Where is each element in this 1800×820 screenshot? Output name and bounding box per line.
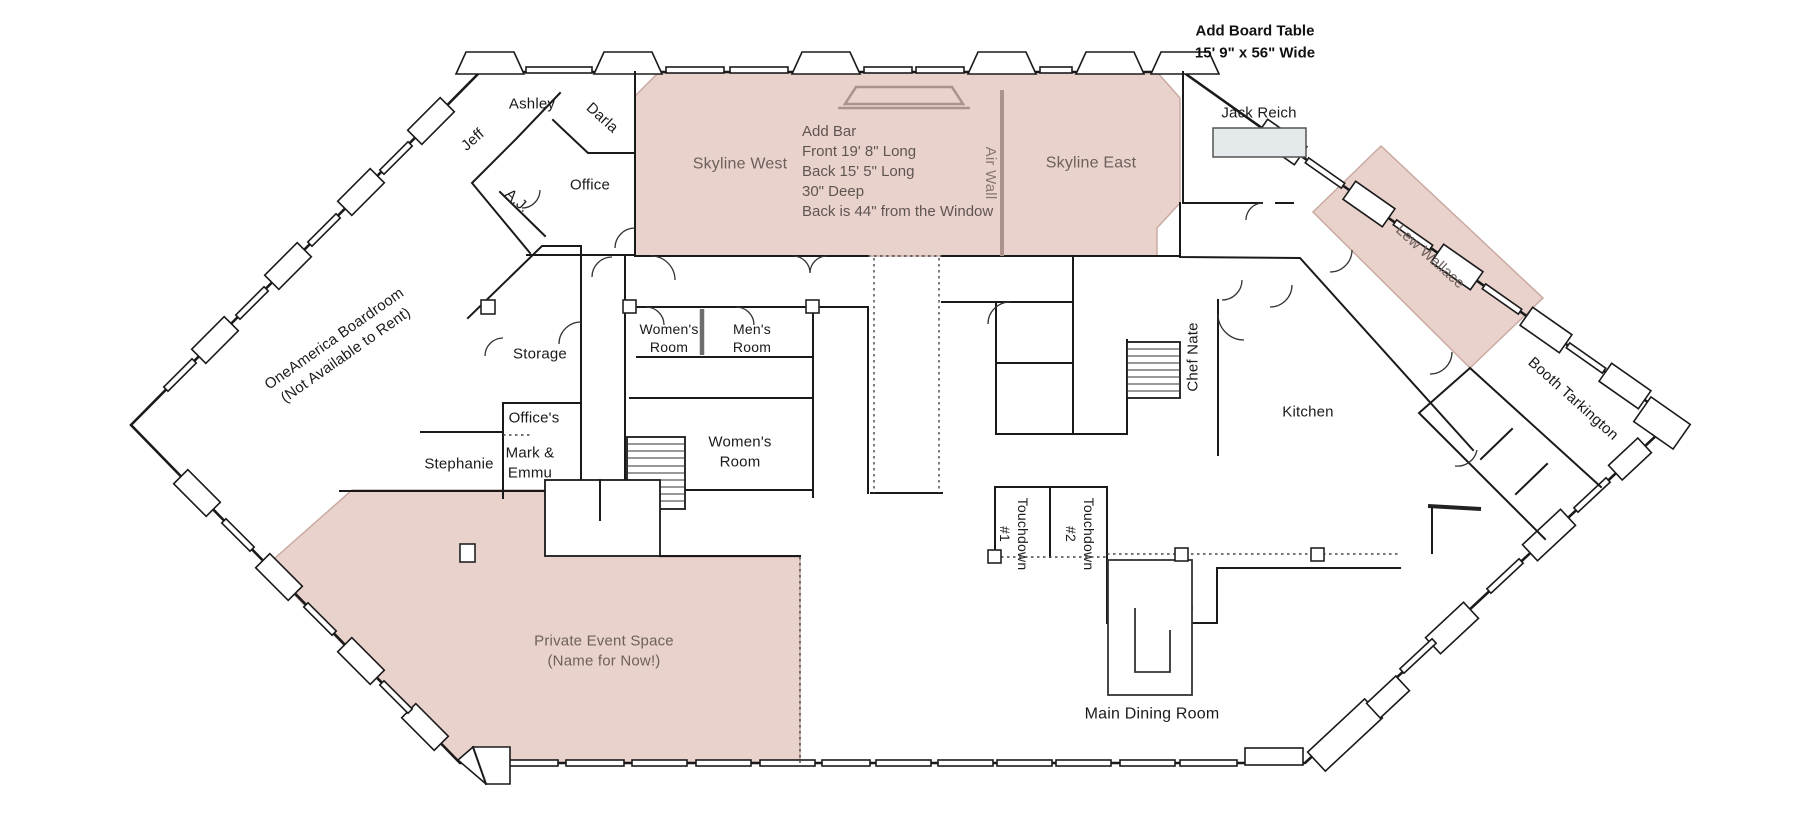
- touchdown2-line1: Touchdown: [1080, 498, 1098, 571]
- event-space-block: [545, 480, 660, 556]
- room-label-office: Office: [570, 175, 610, 195]
- add-bar-note: Add Bar Front 19' 8" Long Back 15' 5" Lo…: [802, 122, 993, 222]
- mark-emmu-line1: Mark &: [506, 444, 555, 464]
- air-wall-label: Air Wall: [980, 147, 1000, 200]
- room-label-chef-nate: Chef Nate: [1183, 322, 1203, 391]
- private-event-line1: Private Event Space: [534, 632, 674, 652]
- womens-upper-line2: Room: [639, 338, 698, 356]
- room-label-womens-room-lower: Women's Room: [708, 433, 771, 472]
- touchdown1-line1: Touchdown: [1014, 498, 1032, 571]
- add-bar-note-line5: Back is 44" from the Window: [802, 202, 993, 222]
- staircase-kitchen: [1127, 342, 1180, 398]
- womens-upper-line1: Women's: [639, 320, 698, 338]
- room-label-mark-emmu: Mark & Emmu: [506, 444, 555, 483]
- room-label-private-event-space: Private Event Space (Name for Now!): [534, 632, 674, 671]
- womens-lower-line1: Women's: [708, 433, 771, 453]
- room-label-touchdown-2: Touchdown #2: [1062, 498, 1098, 571]
- dining-server-station: [1108, 560, 1192, 695]
- room-label-mens-room: Men's Room: [733, 320, 771, 356]
- mark-emmu-line2: Emmu: [506, 463, 555, 483]
- mens-line2: Room: [733, 338, 771, 356]
- room-label-stephanie: Stephanie: [424, 454, 493, 474]
- mens-line1: Men's: [733, 320, 771, 338]
- room-label-kitchen: Kitchen: [1282, 402, 1333, 422]
- room-label-skyline-east: Skyline East: [1046, 154, 1136, 175]
- room-label-storage: Storage: [513, 344, 567, 364]
- add-bar-note-line2: Front 19' 8" Long: [802, 142, 993, 162]
- touchdown1-line2: #1: [996, 498, 1014, 571]
- room-label-touchdown-1: Touchdown #1: [996, 498, 1032, 571]
- room-label-womens-room-upper: Women's Room: [639, 320, 698, 356]
- floor-plan: Add Board Table 15' 9" x 56" Wide Ashley…: [0, 0, 1800, 820]
- private-event-line2: (Name for Now!): [534, 651, 674, 671]
- womens-lower-line2: Room: [708, 452, 771, 472]
- private-event-region: [266, 490, 800, 763]
- add-bar-note-line4: 30" Deep: [802, 182, 993, 202]
- room-label-skyline-west: Skyline West: [693, 155, 788, 176]
- add-bar-note-line3: Back 15' 5" Long: [802, 162, 993, 182]
- board-table: [1213, 128, 1306, 157]
- southeast-entry: [1245, 748, 1303, 765]
- room-label-main-dining-room: Main Dining Room: [1085, 705, 1220, 726]
- counter-bar: [1428, 506, 1481, 509]
- room-label-ashley: Ashley: [509, 94, 555, 114]
- room-label-jack-reich: Jack Reich: [1221, 103, 1296, 123]
- board-table-note-line2: 15' 9" x 56" Wide: [1195, 42, 1315, 64]
- add-bar-note-line1: Add Bar: [802, 122, 993, 142]
- room-label-offices: Office's: [509, 408, 560, 428]
- board-table-note-line1: Add Board Table: [1195, 20, 1315, 42]
- board-table-note: Add Board Table 15' 9" x 56" Wide: [1195, 20, 1315, 64]
- touchdown2-line2: #2: [1062, 498, 1080, 571]
